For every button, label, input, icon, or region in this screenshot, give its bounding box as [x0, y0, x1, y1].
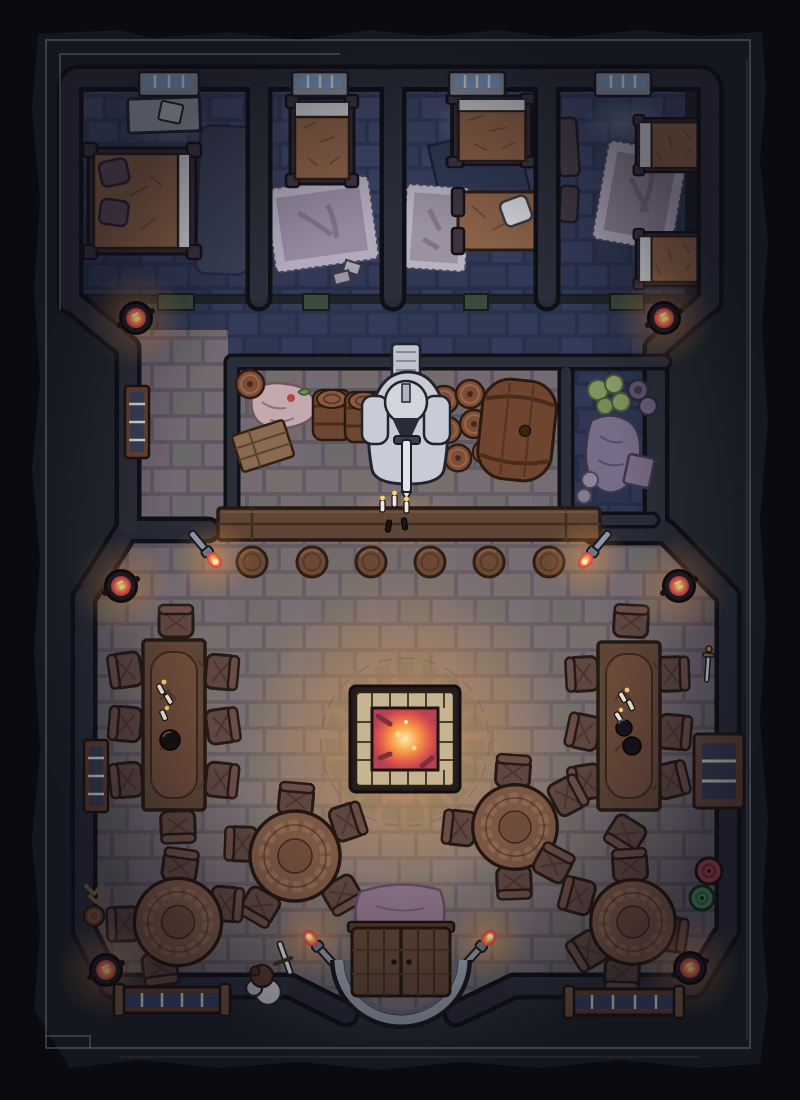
tavern-battle-map [0, 0, 800, 1100]
vignette [28, 28, 772, 1072]
tavern-battle-map-page: { "map": { "kind": "top-down fantasy bat… [0, 0, 800, 1100]
